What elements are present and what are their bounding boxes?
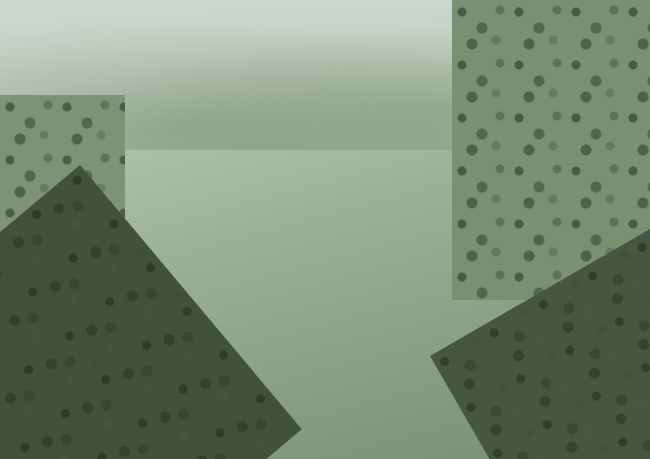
lawn-patch [0, 278, 92, 345]
campus-scene [0, 0, 650, 459]
architectural-aerial-rendering: 朱熹 雅寻。 烟云渺 变化， 宇宙穷 高深。 怀古壮 士志， 忧时君 子心。 寄… [0, 0, 650, 459]
